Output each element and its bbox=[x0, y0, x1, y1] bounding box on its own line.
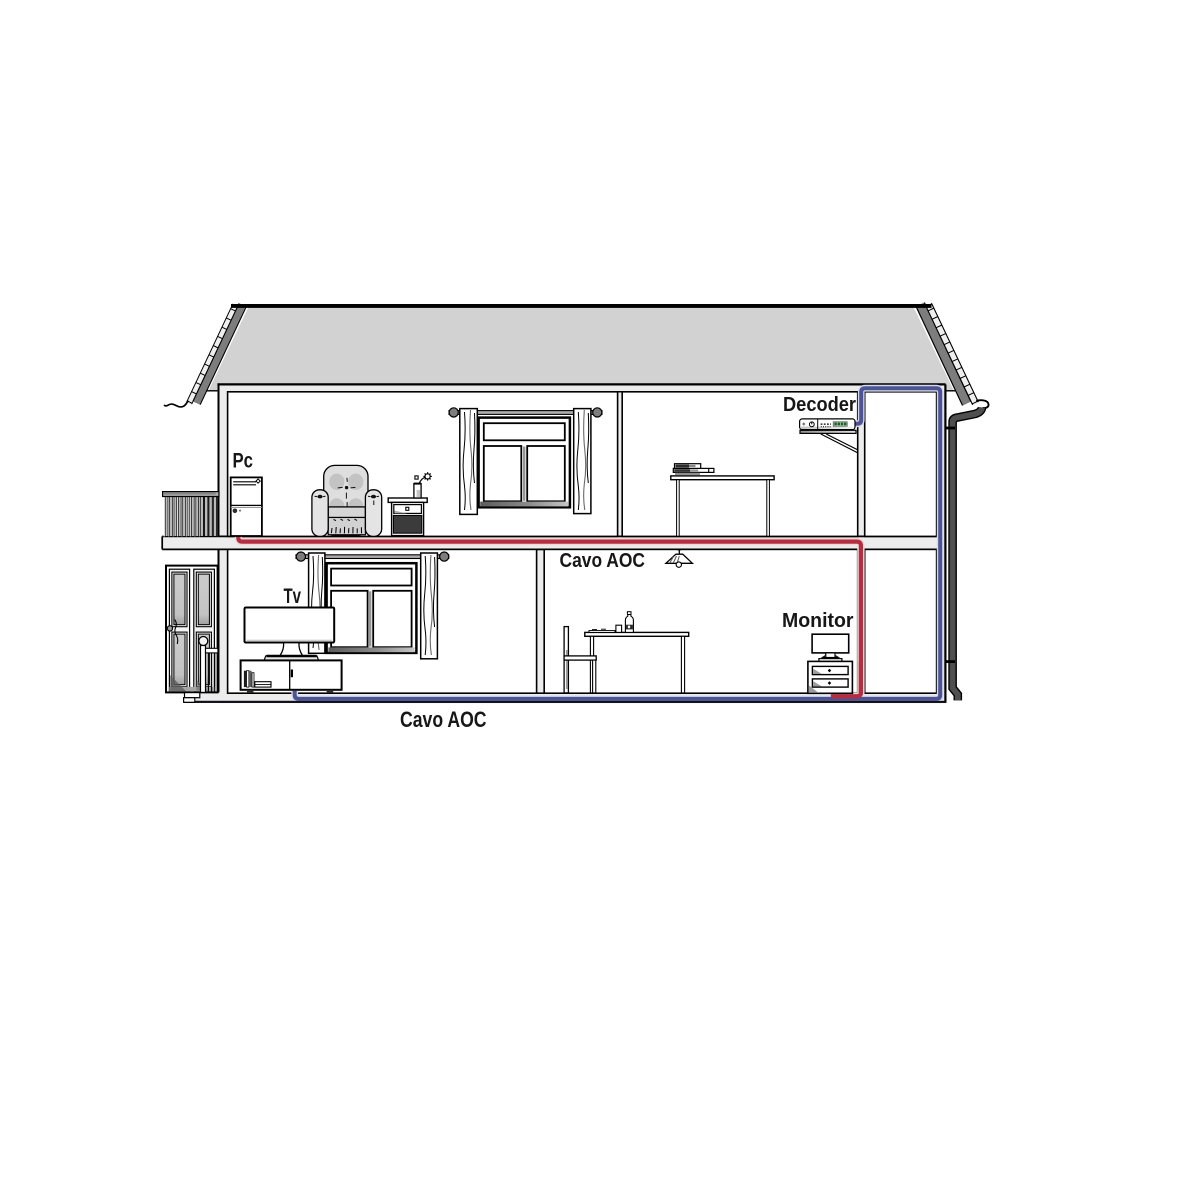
svg-text:Monitor: Monitor bbox=[782, 609, 854, 632]
svg-text:Cavo AOC: Cavo AOC bbox=[400, 707, 487, 732]
svg-text:Decoder: Decoder bbox=[783, 394, 856, 416]
svg-text:Pc: Pc bbox=[233, 450, 254, 473]
svg-text:Tv: Tv bbox=[284, 585, 302, 608]
svg-text:Cavo AOC: Cavo AOC bbox=[560, 550, 646, 572]
